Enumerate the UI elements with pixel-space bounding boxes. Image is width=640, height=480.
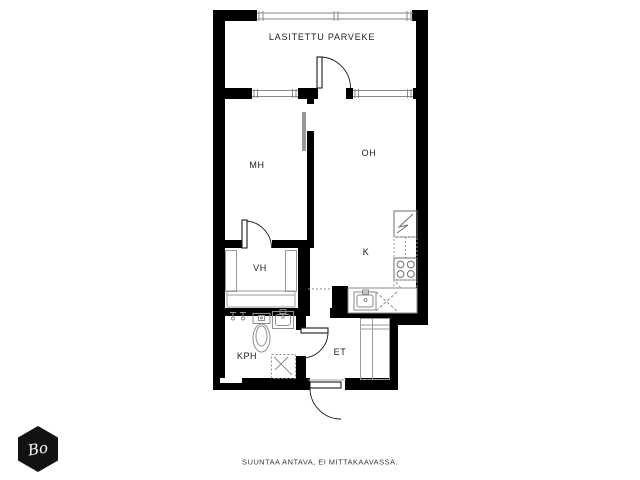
room-label-kph: KPH (237, 351, 257, 361)
entrance-door-icon (308, 380, 346, 419)
bo-logo-text: Bo (27, 440, 49, 458)
windows (252, 11, 413, 98)
floor-plan-drawing (0, 0, 640, 480)
sliding-door-icon (302, 112, 306, 151)
stove-icon (394, 258, 417, 280)
vh-wardrobes-icon (226, 251, 297, 308)
oh-window-icon (353, 89, 413, 98)
kitchen-fixtures (308, 211, 417, 313)
room-label-vh: VH (253, 263, 267, 273)
room-label-k: K (363, 247, 370, 257)
room-label-oh: OH (362, 148, 377, 158)
balcony-door-icon (317, 57, 351, 88)
room-label-mh: MH (249, 160, 264, 170)
mh-window-icon (252, 89, 298, 98)
bedroom-door-icon (242, 220, 272, 248)
entry-closet-icon (361, 319, 390, 380)
bathroom-fixtures (230, 310, 296, 379)
room-label-parveke: LASITETTU PARVEKE (269, 32, 375, 42)
balcony-glazing-icon (257, 11, 413, 21)
upper-cabinet-icon (394, 237, 417, 258)
room-label-et: ET (334, 347, 347, 357)
toilet-icon (253, 314, 270, 353)
shower-icon (272, 355, 296, 379)
bathroom-door-icon (301, 328, 328, 358)
disclaimer-text: SUUNTAA ANTAVA, EI MITTAKAAVASSA. (242, 458, 398, 467)
floor-plan-canvas: LASITETTU PARVEKE MH OH K VH KPH ET SUUN… (0, 0, 640, 480)
refrigerator-icon (394, 211, 417, 237)
